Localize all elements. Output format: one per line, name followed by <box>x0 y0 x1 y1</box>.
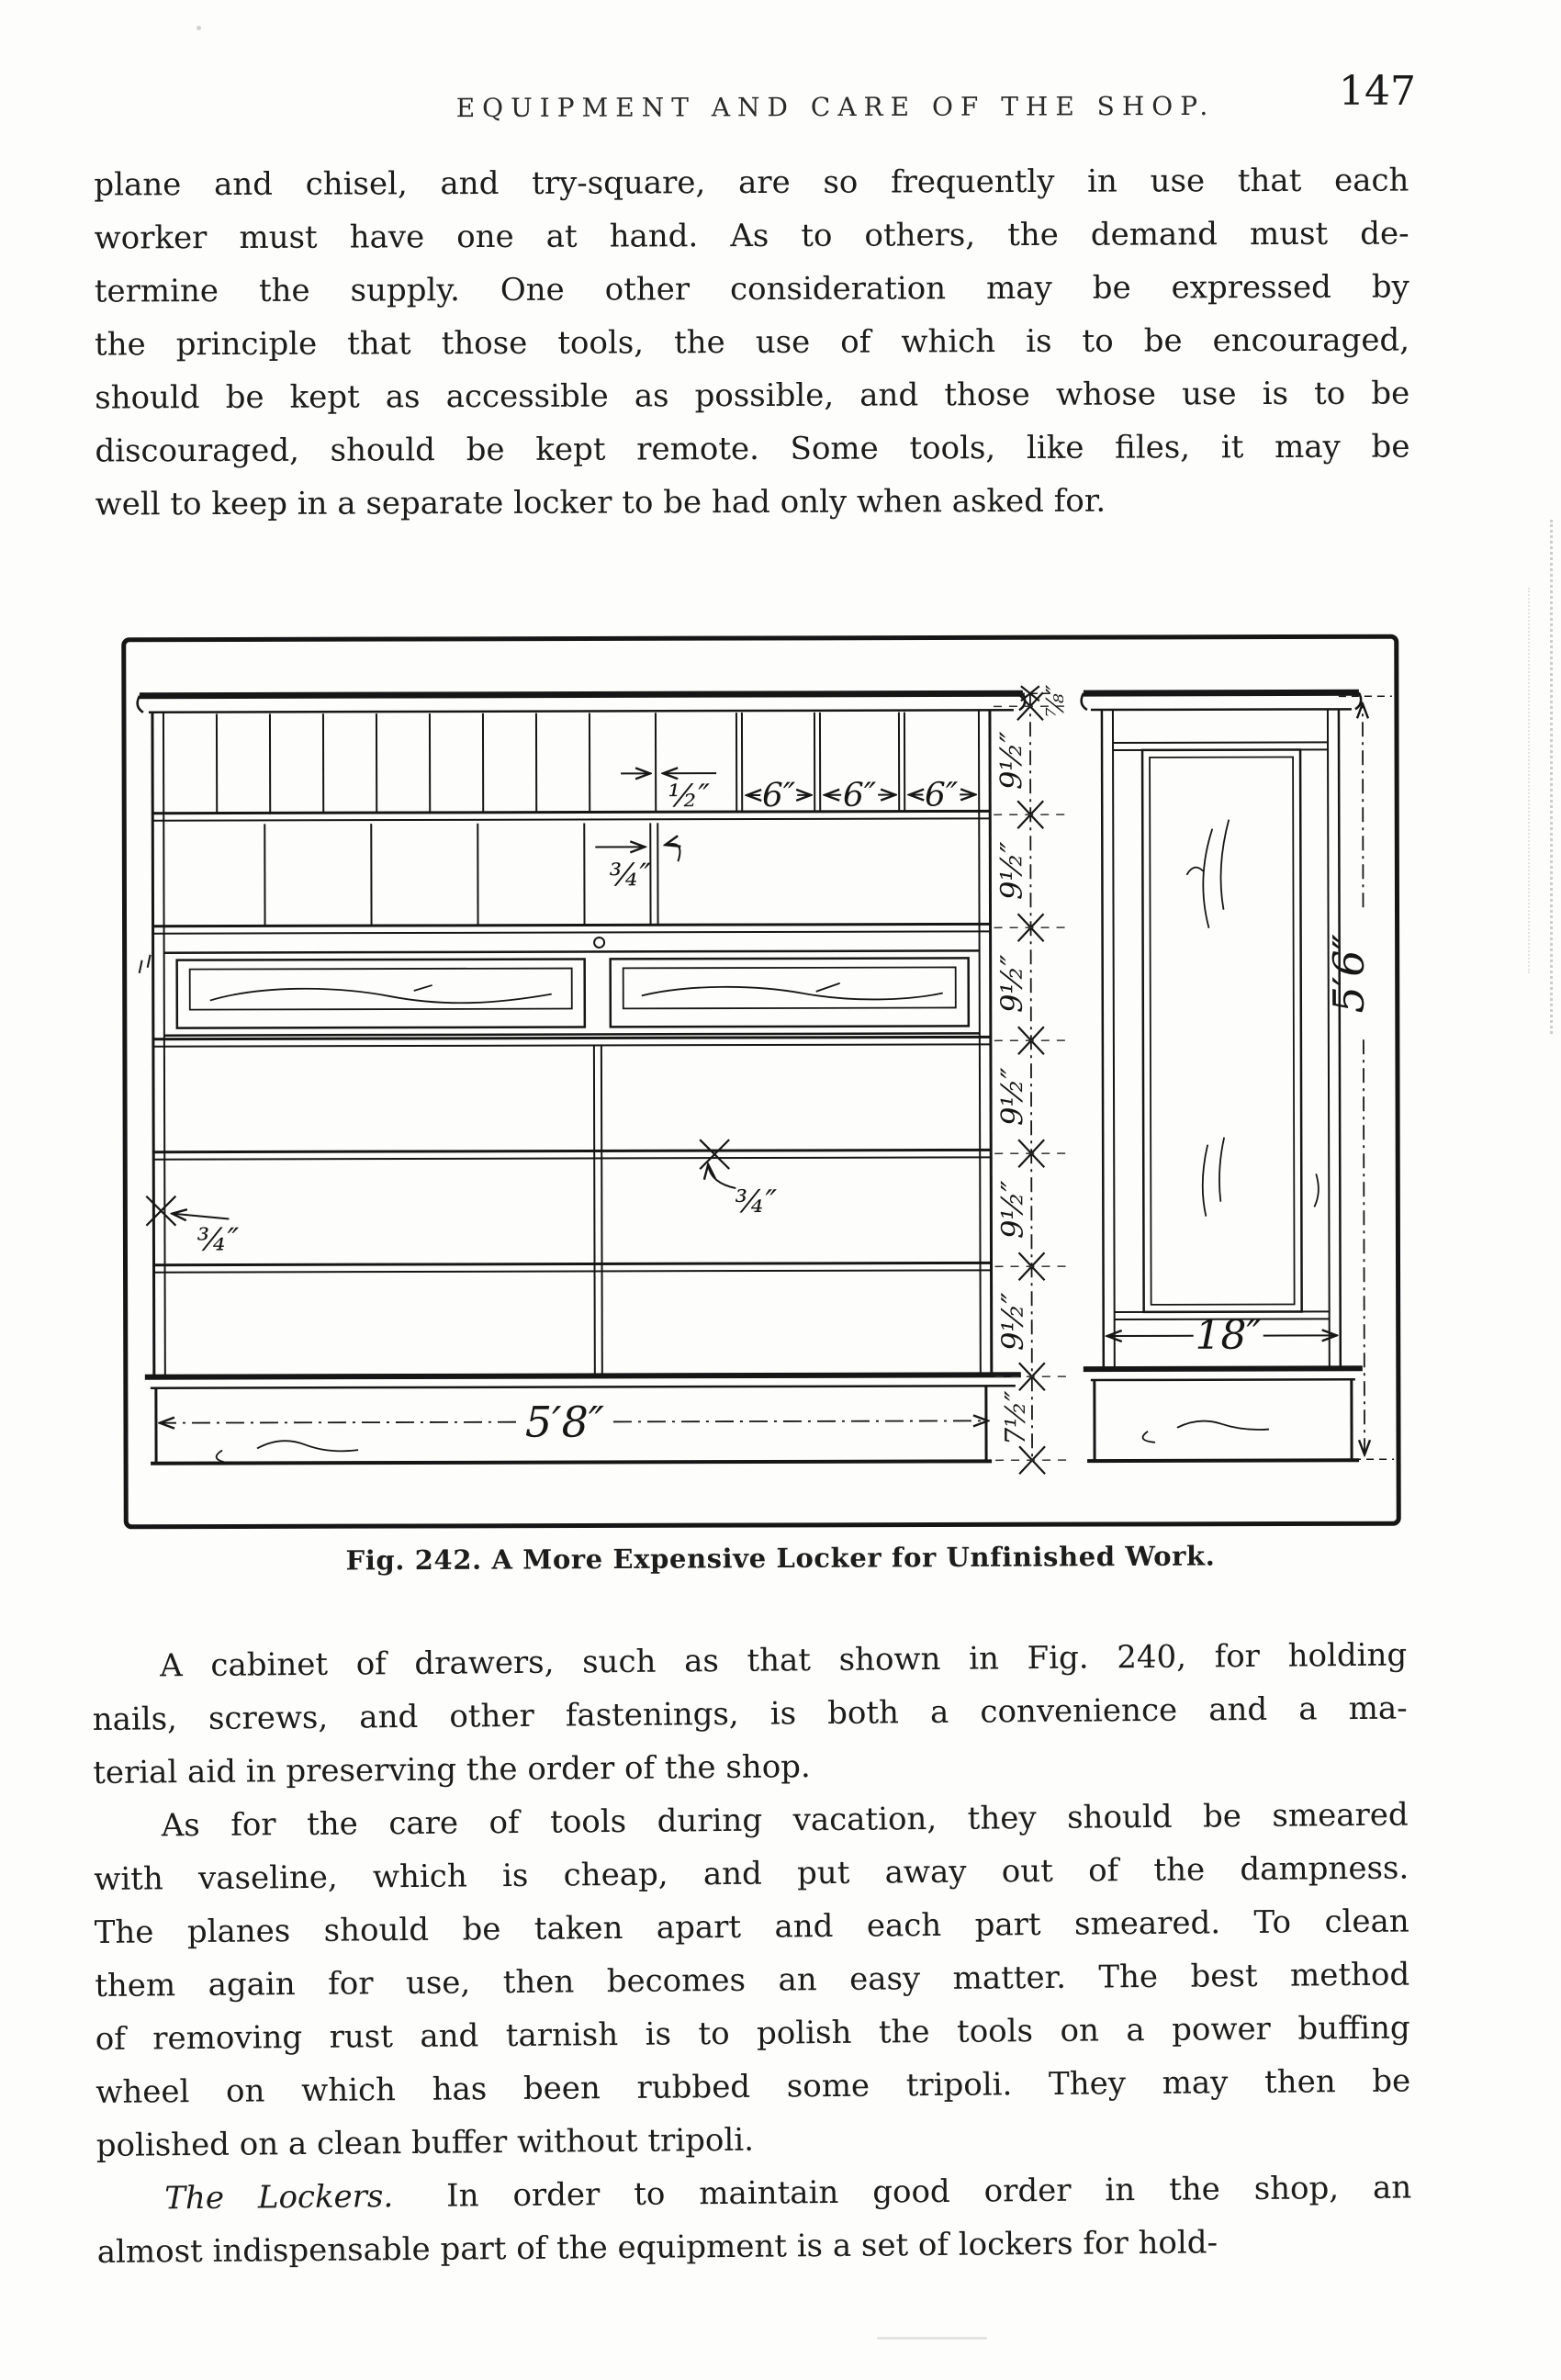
running-header-text: EQUIPMENT AND CARE OF THE SHOP. <box>456 91 1216 123</box>
dim-label-spacing-3: 9½″ <box>994 955 1029 1013</box>
text-line: termine the supply. One other considerat… <box>95 261 1409 319</box>
dim-label-six-inch-3: 6″ <box>925 776 959 814</box>
wood-grain-mark <box>1143 1431 1155 1443</box>
dim-label-half-inch: ½″ <box>668 778 710 814</box>
dim-label-overall-width: 5′8″ <box>525 1397 604 1446</box>
pigeonhole-dividers-upper <box>217 713 904 814</box>
scan-artifact-dot <box>197 26 201 30</box>
dim-label-three-quarter-shelf: ¾″ <box>735 1184 777 1220</box>
lower-text: A cabinet of drawers, such as that shown… <box>92 1629 1412 2279</box>
wood-grain-mark <box>1177 1420 1269 1430</box>
dim-label-spacing-6: 9½″ <box>995 1293 1030 1351</box>
dim-label-spacing-5: 9½″ <box>994 1181 1029 1239</box>
keyhole <box>594 937 604 948</box>
dim-label-cornice-space: ⅞″ <box>1042 684 1070 716</box>
dim-label-base-height: 7½″ <box>1000 1390 1032 1445</box>
paragraph-the-lockers: The Lockers.In order to maintain good or… <box>96 2161 1412 2278</box>
dim-label-six-inch-2: 6″ <box>843 777 877 814</box>
dim-label-three-quarter-side: ¾″ <box>197 1221 240 1258</box>
paragraph-opening: plane and chisel, and try-square, are so… <box>94 154 1409 532</box>
text-line: plane and chisel, and try-square, are so… <box>94 154 1409 212</box>
locker-technical-drawing: ½″ 6″ 6″ 6″ ¾″ <box>121 634 1402 1532</box>
drawer-fronts <box>140 952 969 1027</box>
text-line: almost indispensable part of the equipme… <box>97 2214 1412 2278</box>
paragraph-cabinet: A cabinet of drawers, such as that shown… <box>92 1629 1408 1800</box>
dim-label-six-inch-1: 6″ <box>762 777 796 814</box>
book-page: EQUIPMENT AND CARE OF THE SHOP. 147 plan… <box>0 0 1561 2380</box>
dim-label-spacing-1: 9½″ <box>994 732 1028 790</box>
text-line: the principle that those tools, the use … <box>95 314 1409 372</box>
dimension-shelf-thickness <box>700 1139 736 1188</box>
wood-grain-mark <box>257 1441 358 1452</box>
text-line: worker must have one at hand. As to othe… <box>94 208 1409 265</box>
scan-artifact-dotted-line <box>1550 520 1553 1034</box>
page-number: 147 <box>1339 68 1416 115</box>
wood-grain-marks <box>1186 819 1319 1216</box>
text-line: discouraged, should be kept remote. Some… <box>95 421 1409 478</box>
figure-caption: Fig. 242. A More Expensive Locker for Un… <box>0 1539 1561 1578</box>
paragraph-care-of-tools: As for the care of tools during vacation… <box>93 1789 1410 2172</box>
dimension-overall-height <box>1339 696 1394 1459</box>
locker-front-elevation <box>138 693 1028 1464</box>
dim-label-overall-height: 5′6″ <box>1324 934 1374 1013</box>
dim-label-three-quarter-top: ¾″ <box>610 857 652 893</box>
figure-border <box>124 636 1399 1527</box>
text-line: should be kept as accessible as possible… <box>95 367 1409 425</box>
paragraph-lead: The Lockers. <box>164 2178 446 2217</box>
dim-label-spacing-2: 9½″ <box>994 842 1028 900</box>
text-run: In order to maintain good order in the s… <box>446 2169 1411 2214</box>
running-header: EQUIPMENT AND CARE OF THE SHOP. <box>386 91 1286 124</box>
wood-grain-mark <box>217 1451 230 1464</box>
dim-label-side-depth: 18″ <box>1195 1312 1262 1359</box>
figure-242-drawing: ½″ 6″ 6″ 6″ ¾″ <box>121 634 1402 1532</box>
dim-label-spacing-4: 9½″ <box>994 1068 1029 1126</box>
scan-artifact-dotted-line <box>1528 588 1530 973</box>
scan-artifact-smudge <box>877 2337 987 2340</box>
text-line: well to keep in a separate locker to be … <box>95 473 1410 531</box>
pigeonhole-dividers-lower <box>264 823 657 926</box>
